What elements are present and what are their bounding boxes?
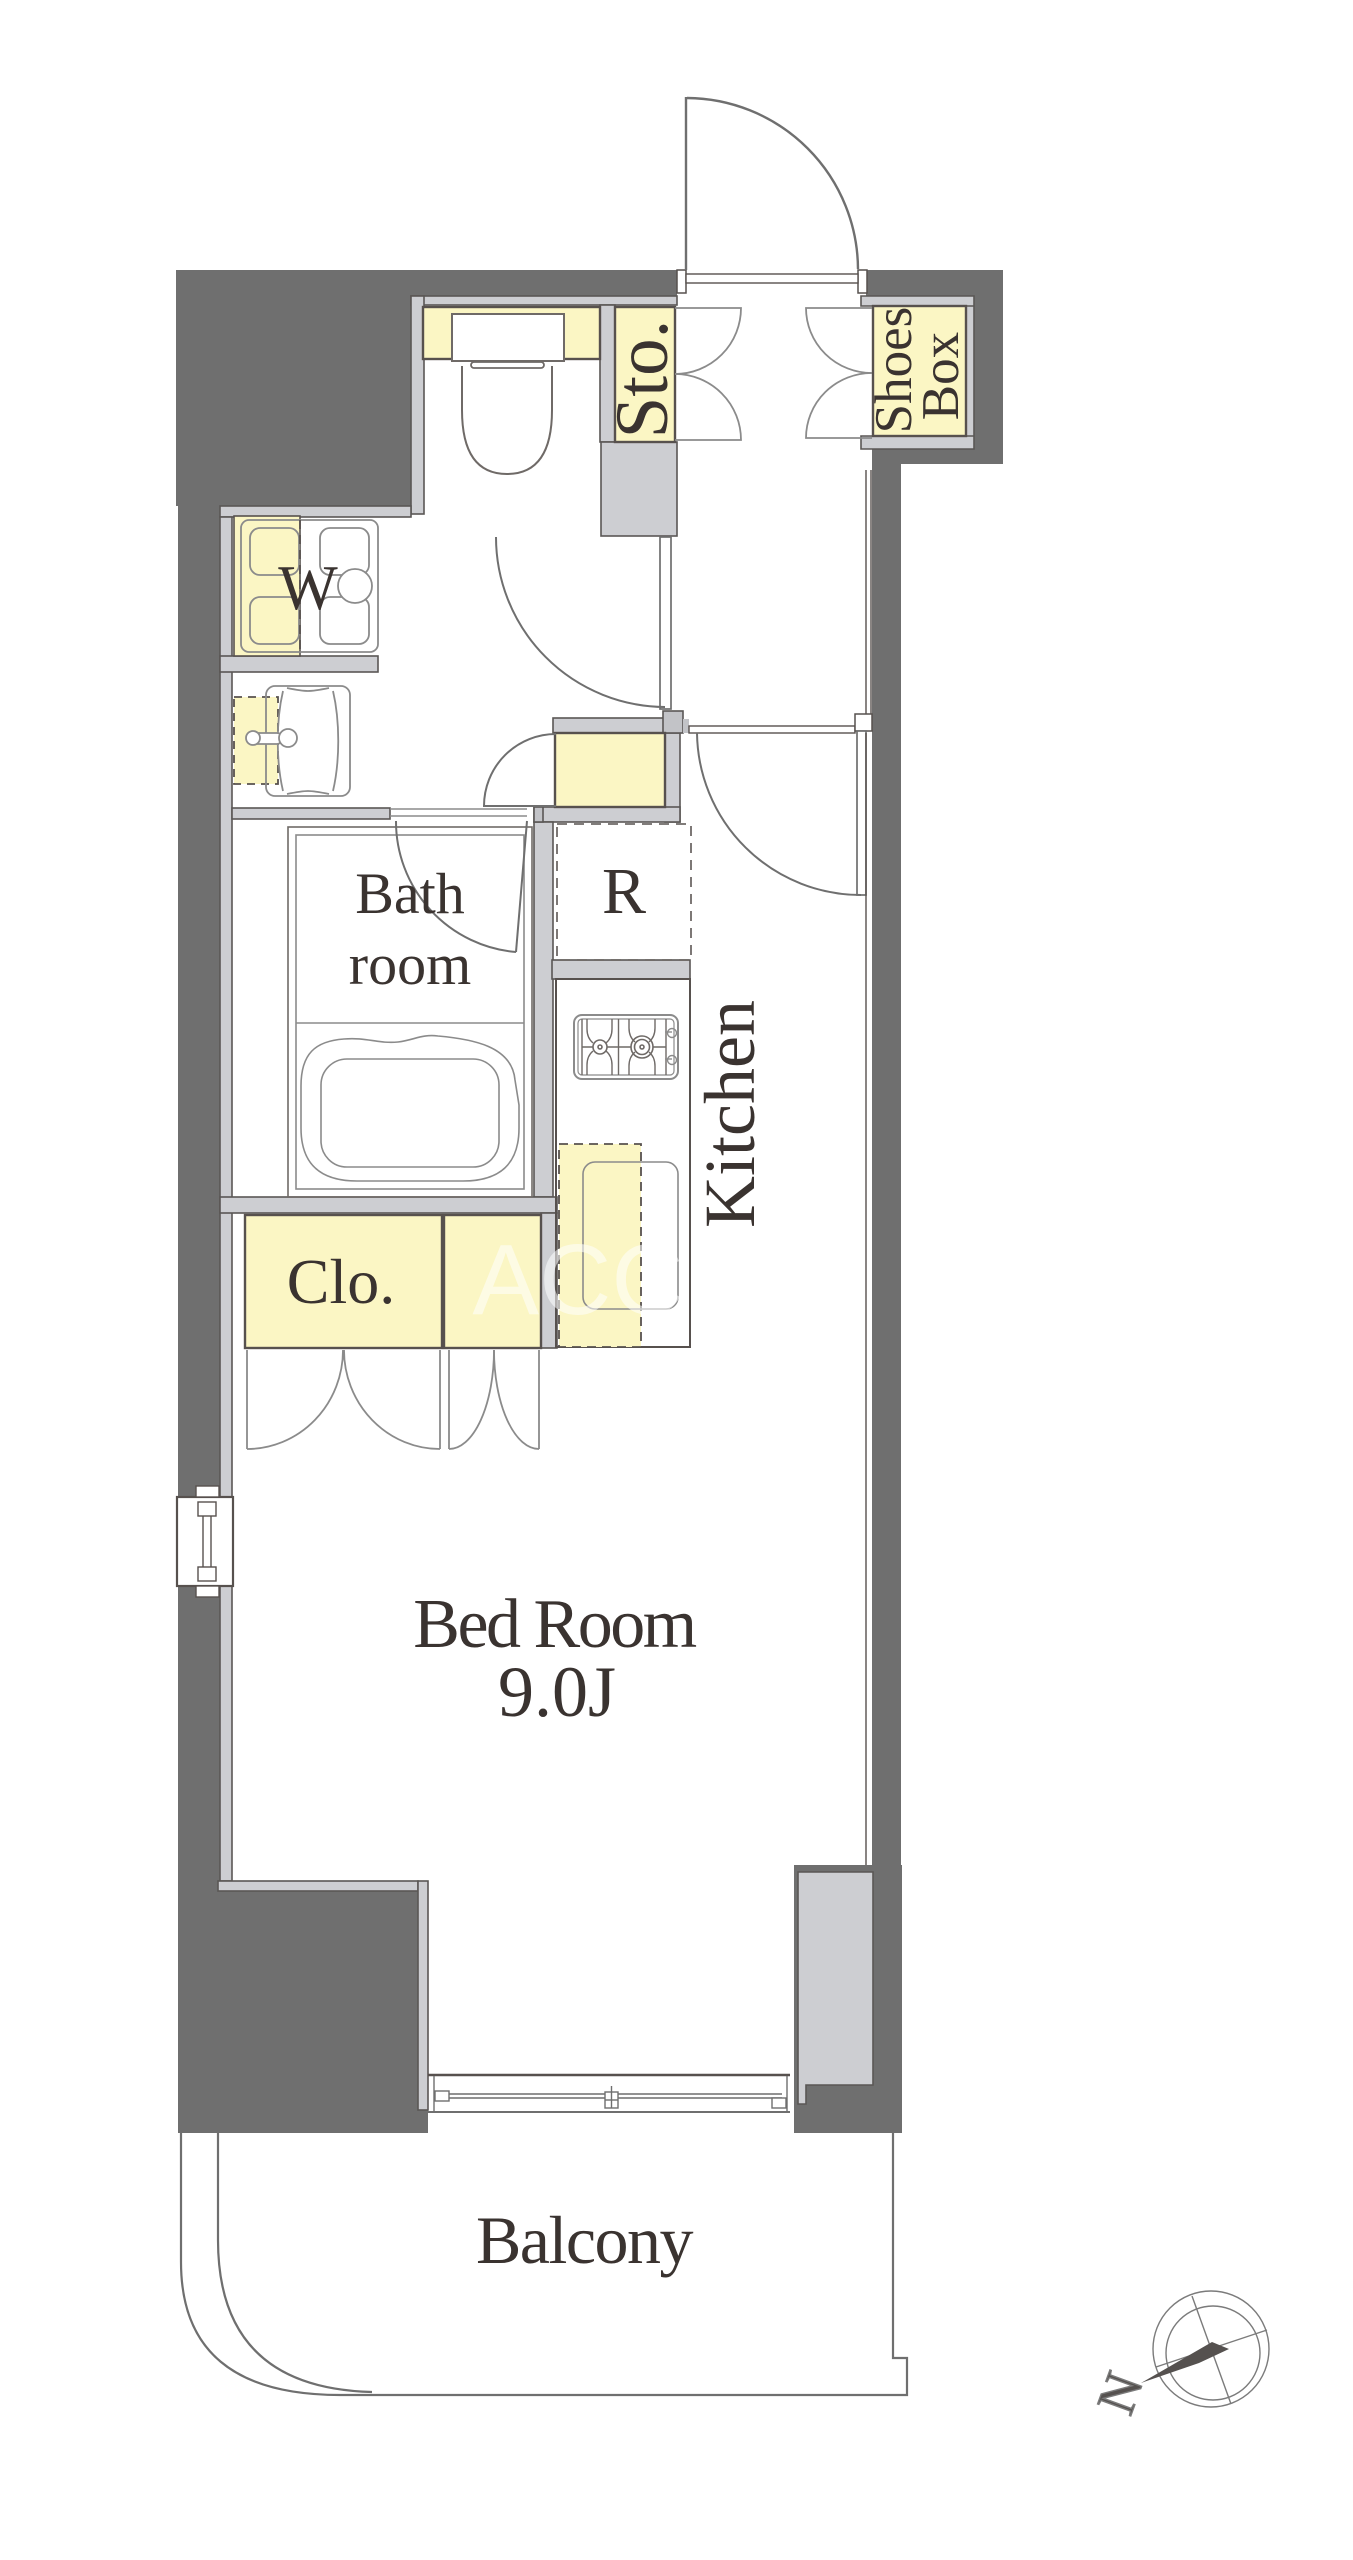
svg-text:Box: Box — [912, 332, 970, 420]
svg-text:Kitchen: Kitchen — [690, 1000, 770, 1228]
svg-text:9.0J: 9.0J — [498, 1652, 616, 1732]
svg-text:room: room — [349, 932, 471, 997]
svg-text:Balcony: Balcony — [476, 2202, 694, 2278]
svg-text:ACC: ACC — [472, 1224, 683, 1336]
svg-text:Bath: Bath — [355, 861, 465, 926]
svg-text:Clo.: Clo. — [287, 1246, 395, 1317]
svg-text:W: W — [278, 553, 338, 623]
svg-text:R: R — [602, 855, 646, 928]
svg-text:Sto.: Sto. — [601, 320, 684, 439]
